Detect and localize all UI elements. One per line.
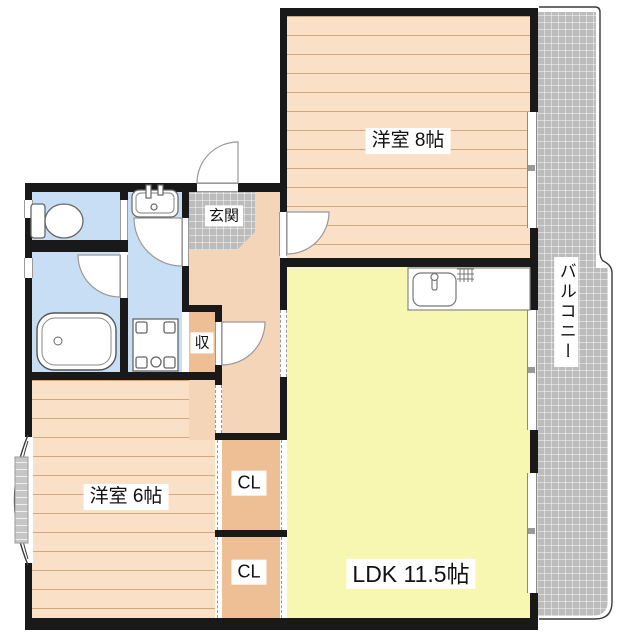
wall xyxy=(25,218,32,258)
wall xyxy=(215,433,287,440)
storage-door-opening xyxy=(215,322,222,365)
room-label-western6: 洋室 6帖 xyxy=(84,484,169,510)
wall xyxy=(530,228,538,310)
wall xyxy=(182,183,189,218)
wall xyxy=(120,183,128,200)
bathroom-door-opening xyxy=(120,255,128,298)
window-mullion xyxy=(528,528,535,534)
wall xyxy=(280,258,538,267)
closet2-folding-door xyxy=(217,537,222,618)
closet1-folding-door xyxy=(217,440,222,530)
toilet-window xyxy=(24,200,33,218)
washroom-door-opening xyxy=(182,218,189,266)
wall xyxy=(25,618,287,630)
room-label-storage: 収 xyxy=(190,332,213,353)
western8-door-leaf xyxy=(279,212,287,256)
wall xyxy=(215,530,287,537)
window-mullion xyxy=(528,367,535,373)
entrance-door-swing-icon xyxy=(197,142,238,183)
room-label-balcony: バルコニー xyxy=(554,257,578,367)
closet1-back-panel xyxy=(281,440,286,530)
room-label-closet1: CL xyxy=(231,471,266,496)
entrance-door-leaf xyxy=(197,183,238,192)
wall xyxy=(280,8,538,16)
wall xyxy=(25,372,222,380)
closet2-back-panel xyxy=(281,537,286,618)
room-bathroom xyxy=(32,252,120,372)
wall xyxy=(25,183,32,200)
room-toilet xyxy=(32,190,120,240)
wall xyxy=(530,16,538,112)
window-mullion xyxy=(528,165,535,171)
wall xyxy=(238,183,287,192)
room-label-western8: 洋室 8帖 xyxy=(366,128,451,154)
room-washroom xyxy=(128,190,182,372)
balcony-upper xyxy=(537,12,596,268)
wall xyxy=(280,377,287,433)
room-label-ldk: LDK 11.5帖 xyxy=(346,559,475,589)
hall-ldk-sliding-door xyxy=(280,310,287,377)
floorplan: 洋室 8帖 LDK 11.5帖 洋室 6帖 玄関 収 CL CL バルコニー xyxy=(0,0,624,640)
room-label-genkan: 玄関 xyxy=(205,205,243,226)
wall xyxy=(25,278,32,437)
bay-window-opening xyxy=(24,437,33,563)
wall xyxy=(280,618,538,630)
wall xyxy=(530,430,538,473)
wall xyxy=(25,183,197,192)
room-label-closet2: CL xyxy=(231,560,266,585)
bathroom-window xyxy=(24,258,33,278)
toilet-door-opening xyxy=(120,200,128,243)
wall xyxy=(215,305,222,322)
western6-door-opening xyxy=(215,385,222,433)
wall xyxy=(280,267,287,310)
wall xyxy=(120,298,128,372)
wall xyxy=(25,563,32,618)
wall xyxy=(25,240,128,252)
